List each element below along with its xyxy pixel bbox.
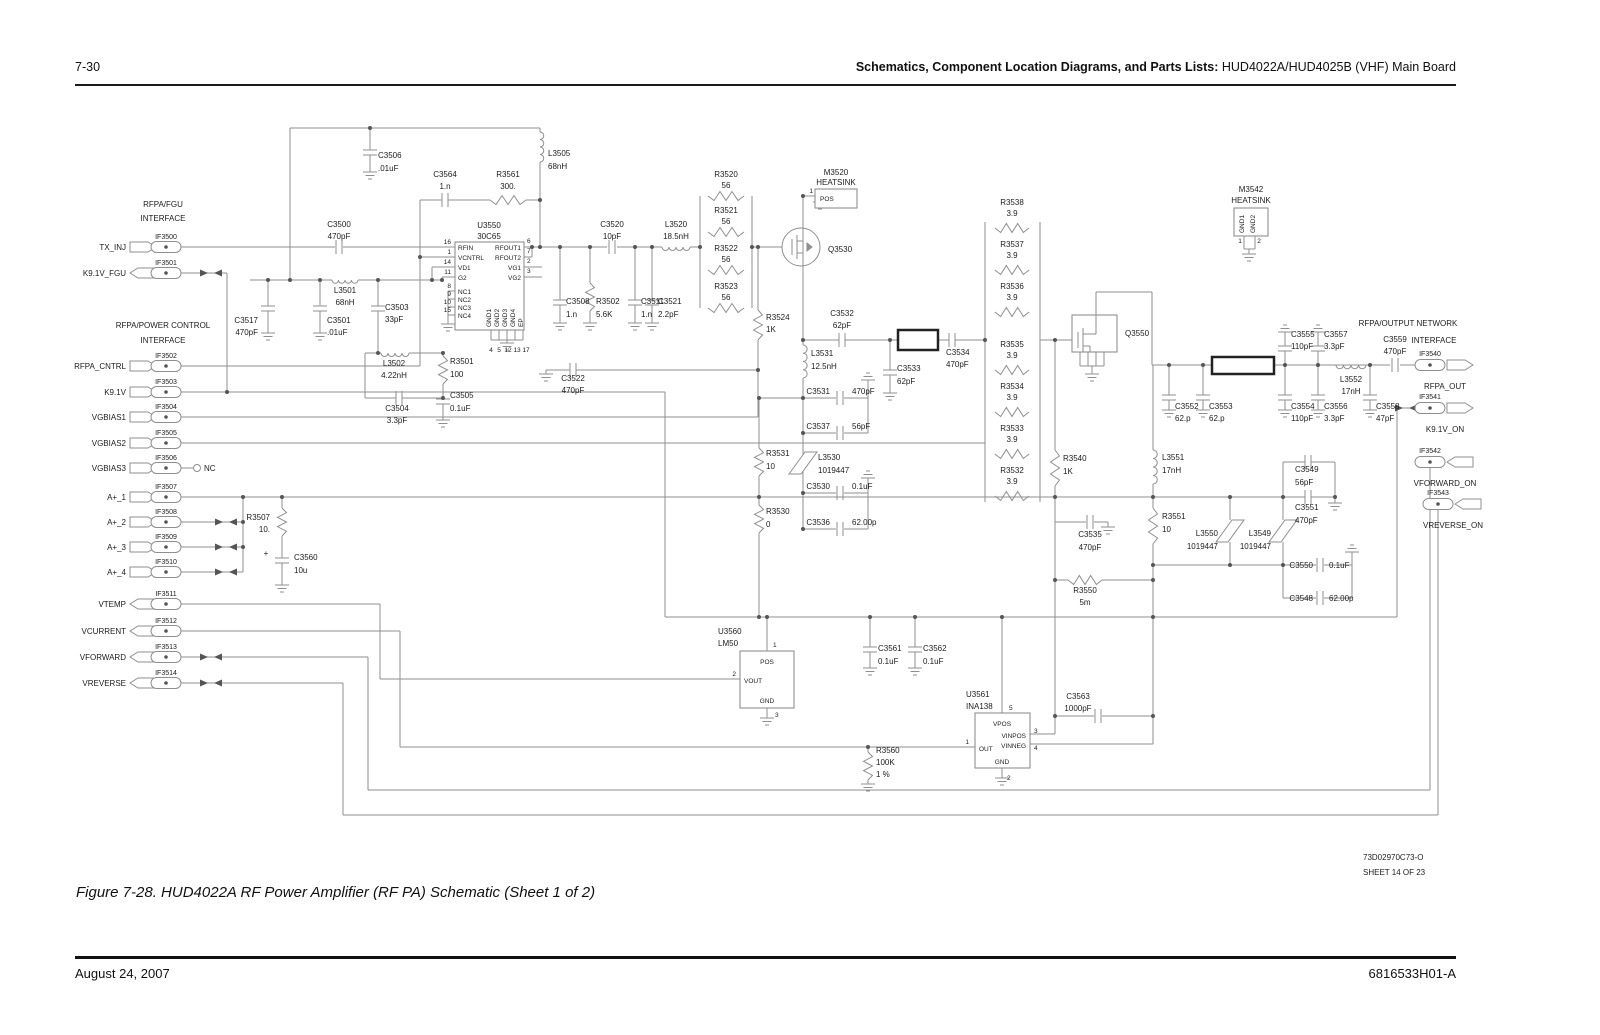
c3562-ref: C3562 [923,644,947,653]
c3520-ref: C3520 [600,220,624,229]
if3503-refdes[interactable]: IF3503 [155,379,177,386]
c3561-ref: C3561 [878,644,902,653]
c3555-ref: C3555 [1291,330,1315,339]
c3553-ref: C3553 [1209,402,1233,411]
m3520-pin1: 1 [809,188,813,195]
r3523-val: 56 [722,293,731,302]
u3550-pin-rfout2: RFOUT2 [495,255,521,262]
u3561-pin-vinpos: VINPOS [1001,733,1026,740]
u3550-num8: 8 [447,283,451,290]
l3520-ref: L3520 [665,220,688,229]
if3506-signal: VGBIAS3 [92,464,127,473]
u3550-num7: 7 [527,248,531,255]
r3534-val: 3.9 [1006,393,1018,402]
u3550-pin-rfin: RFIN [458,245,473,252]
m3542-num2: 2 [1257,238,1261,245]
c3534-ref: C3534 [946,348,970,357]
c3555-val: 110pF [1291,342,1313,351]
u3561-num2: 2 [1007,775,1011,782]
u3561-num4: 4 [1034,745,1038,752]
u3550-pin-nc3: NC3 [458,305,471,312]
u3550-num9: 9 [447,291,451,298]
c3560-plus: + [264,549,269,558]
r3520-ref: R3520 [714,170,738,179]
c3504-ref: C3504 [385,404,409,413]
if3504-signal: VGBIAS1 [92,413,127,422]
c3548-ref: C3548 [1289,594,1313,603]
l3550-ref: L3550 [1196,529,1219,538]
r3536-val: 3.9 [1006,293,1018,302]
header-title: Schematics, Component Location Diagrams,… [856,60,1456,74]
c3550-val: 0.1uF [1329,561,1350,570]
r3524-val: 1K [766,325,776,334]
u3550-num3: 3 [527,268,531,275]
doc-number: 73D02970C73-O [1363,853,1423,862]
c3506-ref: C3506 [378,151,402,160]
l3520-val: 18.5nH [663,232,689,241]
if3514-refdes[interactable]: IF3514 [155,670,177,677]
if3510-signal: A+_4 [107,568,126,577]
footer-doc-id: 6816533H01-A [1369,966,1456,981]
u3550-num15: 15 [444,307,452,314]
u3560-num3: 3 [775,712,779,719]
if3500-signal: TX_INJ [99,243,126,252]
u3560-num1: 1 [773,642,777,649]
c3504-val: 3.3pF [387,416,408,425]
c3531-ref: C3531 [806,387,830,396]
c3501-ref: C3501 [327,316,351,325]
if3506-refdes[interactable]: IF3506 [155,455,177,462]
c3557-val: 3.3pF [1324,342,1345,351]
r3521-ref: R3521 [714,206,738,215]
r3521-val: 56 [722,217,731,226]
c3517-ref: C3517 [234,316,258,325]
u3550-pin-rfout1: RFOUT1 [495,245,521,252]
u3550-num4: 4 [489,347,493,354]
c3552-ref: C3552 [1175,402,1199,411]
u3550-pin-nc2: NC2 [458,297,471,304]
if3501-signal: K9.1V_FGU [83,269,126,278]
u3550-num1: 1 [447,249,451,256]
figure-caption: Figure 7-28. HUD4022A RF Power Amplifier… [76,884,595,901]
u3550-pin-nc4: NC4 [458,313,471,320]
u3550-part: 30C65 [477,232,501,241]
r3534-ref: R3534 [1000,382,1024,391]
r3533-ref: R3533 [1000,424,1024,433]
r3502-val: 5.6K [596,310,613,319]
c3508-ref: C3508 [566,297,590,306]
c3556-ref: C3556 [1324,402,1348,411]
u3550-num14: 14 [444,259,452,266]
sec-pwr-1: RFPA/POWER CONTROL [116,321,211,330]
if3502-signal: RFPA_CNTRL [74,362,126,371]
r3550-val: 5m [1079,598,1090,607]
c3536-val: 62.00p [852,518,877,527]
m3542-name: HEATSINK [1231,196,1271,205]
r3538-ref: R3538 [1000,198,1024,207]
u3561-pin-out: OUT [979,746,993,753]
c3564-ref: C3564 [433,170,457,179]
r3524-ref: R3524 [766,313,790,322]
u3550-num12: 12 [504,347,512,354]
u3561-ref: U3561 [966,690,990,699]
c3553-val: 62.p [1209,414,1225,423]
m3542-ref: M3542 [1239,185,1264,194]
u3550-ref: U3550 [477,221,501,230]
if3543-signal: VREVERSE_ON [1423,521,1483,530]
l3552-val: 17nH [1341,387,1360,396]
m3520-ref: M3520 [824,168,849,177]
c3500-val: 470pF [328,232,351,241]
if3542-signal: VFORWARD_ON [1414,479,1477,488]
r3561-val: 300. [500,182,516,191]
if3511-refdes[interactable]: IF3511 [155,591,176,598]
if3543-refdes[interactable]: IF3543 [1427,490,1449,497]
c3554-ref: C3554 [1291,402,1315,411]
r3538-val: 3.9 [1006,209,1018,218]
l3551-ref: L3551 [1162,453,1185,462]
l3501-ref: L3501 [334,286,357,295]
c3522-val: 470pF [562,386,585,395]
u3550-num2: 2 [527,258,531,265]
l3549-val: 1019447 [1240,542,1272,551]
if3505-signal: VGBIAS2 [92,439,127,448]
c3521-val: 2.2pF [658,310,679,319]
u3561-pin-gnd: GND [995,759,1010,766]
u3550-pin-gnd3: GND3 [502,309,509,327]
if3541-signal: K9.1V_ON [1426,425,1464,434]
c3537-ref: C3537 [806,422,830,431]
if3508-signal: A+_2 [107,518,126,527]
u3561-num5: 5 [1009,705,1013,712]
c3532-val: 62pF [833,321,851,330]
r3536-ref: R3536 [1000,282,1024,291]
r3501-val: 100 [450,370,464,379]
r3537-ref: R3537 [1000,240,1024,249]
u3550-pin-vd1: VD1 [458,265,471,272]
l3531-ref: L3531 [811,349,834,358]
if3507-signal: A+_1 [107,493,126,502]
u3560-pin-gnd: GND [760,698,775,705]
c3500-ref: C3500 [327,220,351,229]
m3542-pin-gnd2: GND2 [1250,215,1257,233]
if3540-refdes[interactable]: IF3540 [1419,351,1441,358]
u3550-num11: 11 [444,269,451,276]
c3559-val: 470pF [1384,347,1407,356]
l3505-ref: L3505 [548,149,571,158]
c3551-ref: C3551 [1295,503,1319,512]
r3560-val: 100K [876,758,895,767]
if3540-signal: RFPA_OUT [1424,382,1466,391]
c3558-ref: C3558 [1376,402,1400,411]
r3533-val: 3.9 [1006,435,1018,444]
c3536-ref: C3536 [806,518,830,527]
r3520-val: 56 [722,181,731,190]
c3556-val: 3.3pF [1324,414,1345,423]
if3501-refdes[interactable]: IF3501 [155,260,177,267]
m3542-num1: 1 [1238,238,1242,245]
c3530-ref: C3530 [806,482,830,491]
u3560-num2: 2 [732,671,736,678]
l3530-val: 1019447 [818,466,850,475]
c3563-ref: C3563 [1066,692,1090,701]
c3558-val: 47pF [1376,414,1394,423]
c3517-val: 470pF [235,328,258,337]
r3502-ref: R3502 [596,297,620,306]
l3501-val: 68nH [335,298,354,307]
r3532-ref: R3532 [1000,466,1024,475]
nc-label: NC [204,464,216,473]
u3550-pin-vg1: VG1 [508,265,521,272]
r3560-tol: 1 % [876,770,890,779]
r3535-val: 3.9 [1006,351,1018,360]
r3540-ref: R3540 [1063,454,1087,463]
u3550-pin-gnd2: GND2 [494,309,501,327]
schematic-page: 7-30 Schematics, Component Location Diag… [0,0,1600,1035]
sec-fgu-2: INTERFACE [141,214,186,223]
r3561-ref: R3561 [496,170,520,179]
if3514-signal: VREVERSE [82,679,126,688]
q3530-ref: Q3530 [828,245,853,254]
if3504-refdes[interactable]: IF3504 [155,404,177,411]
c3560-val: 10u [294,566,307,575]
c3551-val: 470pF [1295,516,1318,525]
if3509-refdes[interactable]: IF3509 [155,534,177,541]
page-header: 7-30 Schematics, Component Location Diag… [75,58,1456,78]
q3550-ref: Q3550 [1125,329,1150,338]
if3507-refdes[interactable]: IF3507 [155,484,177,491]
r3522-val: 56 [722,255,731,264]
c3549-val: 56pF [1295,478,1313,487]
c3560-ref: C3560 [294,553,318,562]
c3511-val: 1.n [641,310,652,319]
footer-date: August 24, 2007 [75,966,170,981]
r3523-ref: R3523 [714,282,738,291]
header-rule [75,84,1456,86]
u3550-num10: 10 [444,299,452,306]
sec-pwr-2: INTERFACE [141,336,186,345]
if3542-refdes[interactable]: IF3542 [1419,448,1441,455]
c3564-val: 1.n [439,182,450,191]
r3531-ref: R3531 [766,449,790,458]
m3520-pin-pos: POS [820,196,834,203]
r3507-val: 10. [259,525,270,534]
c3508-val: 1.n [566,310,577,319]
r3530-val: 0 [766,520,771,529]
c3531-val: 470pF [852,387,875,396]
r3537-val: 3.9 [1006,251,1018,260]
u3560-pin-pos: POS [760,659,774,666]
r3530-ref: R3530 [766,507,790,516]
u3550-num6: 6 [527,238,531,245]
r3550-ref: R3550 [1073,586,1097,595]
c3506-val: .01uF [378,164,399,173]
if3541-refdes[interactable]: IF3541 [1419,394,1441,401]
c3521-ref: C3521 [658,297,682,306]
if3512-signal: VCURRENT [82,627,127,636]
if3511-signal: VTEMP [98,600,126,609]
c3532-ref: C3532 [830,309,854,318]
c3505-val: 0.1uF [450,404,471,413]
r3522-ref: R3522 [714,244,738,253]
c3522-ref: C3522 [561,374,585,383]
l3530-ref: L3530 [818,453,841,462]
r3501-ref: R3501 [450,357,474,366]
l3505-val: 68nH [548,162,567,171]
c3535-ref: C3535 [1078,530,1102,539]
u3550-pin-vg2: VG2 [508,275,521,282]
c3548-val: 62.00p [1329,594,1354,603]
r3551-val: 10 [1162,525,1171,534]
u3560-ref: U3560 [718,627,742,636]
if3513-refdes[interactable]: IF3513 [155,644,177,651]
sheet-info: SHEET 14 OF 23 [1363,868,1426,877]
u3561-num1: 1 [965,739,969,746]
u3550-num5: 5 [497,347,501,354]
r3532-val: 3.9 [1006,477,1018,486]
u3550-pin-ep: EP [518,318,525,327]
c3533-ref: C3533 [897,364,921,373]
r3507-ref: R3507 [246,513,270,522]
c3503-val: 33pF [385,315,403,324]
l3549-ref: L3549 [1249,529,1272,538]
footer-rule [75,956,1456,959]
u3550-num13: 13 [513,347,521,354]
m3542-pin-gnd1: GND1 [1239,215,1246,233]
r3560-ref: R3560 [876,746,900,755]
u3550-pin-nc1: NC1 [458,289,471,296]
l3551-val: 17nH [1162,466,1181,475]
c3561-val: 0.1uF [878,657,899,666]
schematic-canvas: TX_INJIF3500K9.1V_FGUIF3501RFPA_CNTRLIF3… [0,0,1600,1035]
u3560-part: LM50 [718,639,739,648]
c3503-ref: C3503 [385,303,409,312]
sec-fgu-1: RFPA/FGU [143,200,183,209]
if3513-signal: VFORWARD [80,653,126,662]
if3510-refdes[interactable]: IF3510 [155,559,177,566]
u3550-pin-gnd4: GND4 [510,309,517,327]
u3561-num3: 3 [1034,728,1038,735]
c3562-val: 0.1uF [923,657,944,666]
header-title-bold: Schematics, Component Location Diagrams,… [856,60,1219,74]
u3561-part: INA138 [966,702,993,711]
l3502-val: 4.22nH [381,371,407,380]
l3550-val: 1019447 [1187,542,1219,551]
if3500-refdes[interactable]: IF3500 [155,234,177,241]
c3505-ref: C3505 [450,391,474,400]
c3550-ref: C3550 [1289,561,1313,570]
page-footer: August 24, 2007 6816533H01-A [75,966,1456,981]
c3554-val: 110pF [1291,414,1313,423]
if3502-refdes[interactable]: IF3502 [155,353,177,360]
l3531-val: 12.5nH [811,362,837,371]
u3550-num16: 16 [444,239,452,246]
u3550-num17: 17 [522,347,530,354]
header-title-rest: HUD4022A/HUD4025B (VHF) Main Board [1218,60,1456,74]
c3533-val: 62pF [897,377,915,386]
c3557-ref: C3557 [1324,330,1348,339]
u3550-pin-gnd1: GND1 [486,309,493,327]
u3550-pin-vcntrl: VCNTRL [458,255,484,262]
c3534-val: 470pF [946,360,969,369]
u3561-pin-vpos: VPOS [993,721,1012,728]
u3560-pin-vout: VOUT [744,678,762,685]
r3535-ref: R3535 [1000,340,1024,349]
u3561-pin-vinneg: VINNEG [1001,743,1026,750]
sec-out-1: RFPA/OUTPUT NETWORK [1359,319,1458,328]
if3508-refdes[interactable]: IF3508 [155,509,177,516]
c3552-val: 62.p [1175,414,1191,423]
l3502-ref: L3502 [383,359,406,368]
c3559-ref: C3559 [1383,335,1407,344]
r3531-val: 10 [766,462,775,471]
r3540-val: 1K [1063,467,1073,476]
l3552-ref: L3552 [1340,375,1363,384]
sec-out-2: INTERFACE [1412,336,1457,345]
c3537-val: 56pF [852,422,870,431]
if3509-signal: A+_3 [107,543,126,552]
c3530-val: 0.1uF [852,482,873,491]
c3563-val: 1000pF [1064,704,1091,713]
c3535-val: 470pF [1079,543,1102,552]
page-number: 7-30 [75,60,100,74]
m3520-name: HEATSINK [816,178,856,187]
c3501-val: .01uF [327,328,348,337]
if3505-refdes[interactable]: IF3505 [155,430,177,437]
u3550-pin-g2: G2 [458,275,467,282]
c3549-ref: C3549 [1295,465,1319,474]
r3551-ref: R3551 [1162,512,1186,521]
if3503-signal: K9.1V [104,388,126,397]
if3512-refdes[interactable]: IF3512 [155,618,177,625]
c3520-val: 10pF [603,232,621,241]
